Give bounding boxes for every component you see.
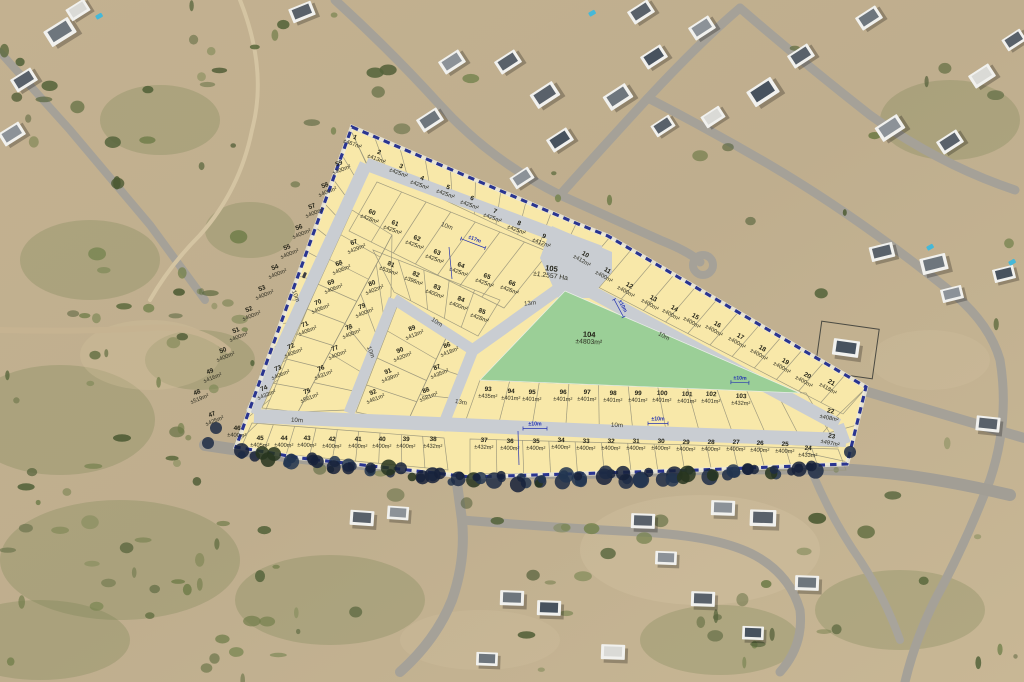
plot-area: ±400m² [551, 444, 571, 451]
house [975, 415, 1004, 436]
plot-area: ±400m² [701, 446, 721, 453]
plot-area: ±400m² [775, 448, 795, 455]
plot-area: ±400m² [227, 432, 247, 439]
road-width-text: 10m [611, 422, 623, 429]
plot-area: ±4803m² [575, 338, 603, 346]
plot-number: 26 [756, 440, 764, 447]
plot-number: 43 [303, 435, 311, 442]
plot-area: ±400m² [372, 443, 392, 450]
plot-number: 99 [634, 390, 642, 397]
plot-area: ±400m² [322, 443, 342, 450]
plot-number: 45 [256, 435, 264, 442]
plot-number: 42 [328, 436, 336, 443]
house [349, 510, 377, 530]
plot-area: ±400m² [396, 443, 416, 450]
house [631, 513, 659, 532]
plot-number: 94 [507, 388, 515, 395]
plot-area: ±435m² [478, 393, 498, 400]
plot-number: 103 [736, 393, 747, 401]
plot-area: ±432m² [731, 400, 751, 407]
plot-area: ±401m² [603, 397, 623, 404]
plot-number: 44 [280, 435, 288, 442]
plot-area: ±432m² [474, 444, 494, 451]
house [387, 506, 412, 524]
plot-number: 93 [484, 386, 492, 393]
plot-number: 96 [559, 389, 567, 396]
plot-number: 97 [583, 389, 591, 396]
plot-number: 29 [682, 439, 690, 446]
plot-area: ±400m² [726, 446, 746, 453]
plot-area: ±433m² [798, 452, 818, 459]
house [831, 338, 863, 362]
plot-area: ±400m² [750, 447, 770, 454]
plot-area: ±401m² [501, 395, 521, 402]
plot-area: ±400m² [651, 445, 671, 452]
plot-area: ±401m² [522, 396, 542, 403]
house [742, 626, 767, 643]
house [601, 644, 629, 663]
plot-number: 36 [506, 438, 514, 445]
house [655, 551, 680, 568]
road-width-label: 10m [291, 417, 304, 425]
plot-area: ±401m² [577, 396, 597, 403]
plot-number: 46 [233, 425, 241, 432]
house [795, 575, 823, 594]
plot-number: 38 [429, 436, 437, 443]
plot-number: 39 [402, 436, 410, 443]
plot-number: 28 [707, 439, 715, 446]
plot-number: 33 [582, 438, 590, 445]
plot-number: 37 [480, 437, 488, 444]
plot-number: 95 [528, 389, 536, 396]
road-width-label: 13m [524, 299, 537, 307]
plot-number: 24 [804, 445, 812, 452]
road-width-label: 10m [611, 422, 623, 429]
plot-number: 101 [682, 391, 693, 399]
plot-area: ±400m² [500, 445, 520, 452]
plot-number: 32 [607, 438, 615, 445]
house [537, 600, 565, 619]
plot-area: ±400m² [297, 442, 317, 449]
plot-area: ±405m² [250, 442, 270, 449]
site-plan-canvas: 1±467m²2±413m²3±425m²4±425m²5±425m²6±425… [0, 0, 1024, 682]
plot-number: 31 [632, 438, 640, 445]
plot-area: ±432m² [423, 443, 443, 450]
plot-number: 27 [732, 439, 740, 446]
house [749, 509, 779, 530]
aerial-subdivision-plan: 1±467m²2±413m²3±425m²4±425m²5±425m²6±425… [0, 0, 1024, 682]
road-width-text: 10m [291, 417, 304, 425]
plot-area: ±400m² [676, 446, 696, 453]
dimension-text: ±10m [528, 422, 542, 428]
plot-area: ±400m² [348, 443, 368, 450]
house [476, 652, 501, 669]
plot-area: ±401m² [553, 396, 573, 403]
plot-area: ±400m² [601, 445, 621, 452]
house [691, 591, 719, 610]
plot-number: 34 [557, 437, 565, 444]
plot-area: ±400m² [626, 445, 646, 452]
plot-area: ±400m² [576, 445, 596, 452]
plot-number: 25 [781, 441, 789, 448]
plot-number: 102 [706, 391, 717, 399]
plot-number: 41 [354, 436, 362, 443]
dimension-text: ±10m [733, 375, 747, 381]
road-width-text: 13m [524, 299, 537, 307]
plot-area: ±401m² [677, 398, 697, 405]
dimension-text: ±10m [651, 417, 665, 423]
plot-number: 100 [657, 390, 668, 398]
plot-number: 30 [657, 438, 665, 445]
house [711, 500, 739, 519]
plot-number: 35 [532, 438, 540, 445]
plot-area: ±400m² [274, 442, 294, 449]
house [500, 590, 528, 609]
plot-area: ±401m² [628, 397, 648, 404]
plot-area: ±400m² [526, 445, 546, 452]
plot-area: ±401m² [701, 398, 721, 405]
plot-area: ±401m² [652, 397, 672, 404]
plot-number: 98 [609, 390, 617, 397]
plot-number: 40 [378, 436, 386, 443]
